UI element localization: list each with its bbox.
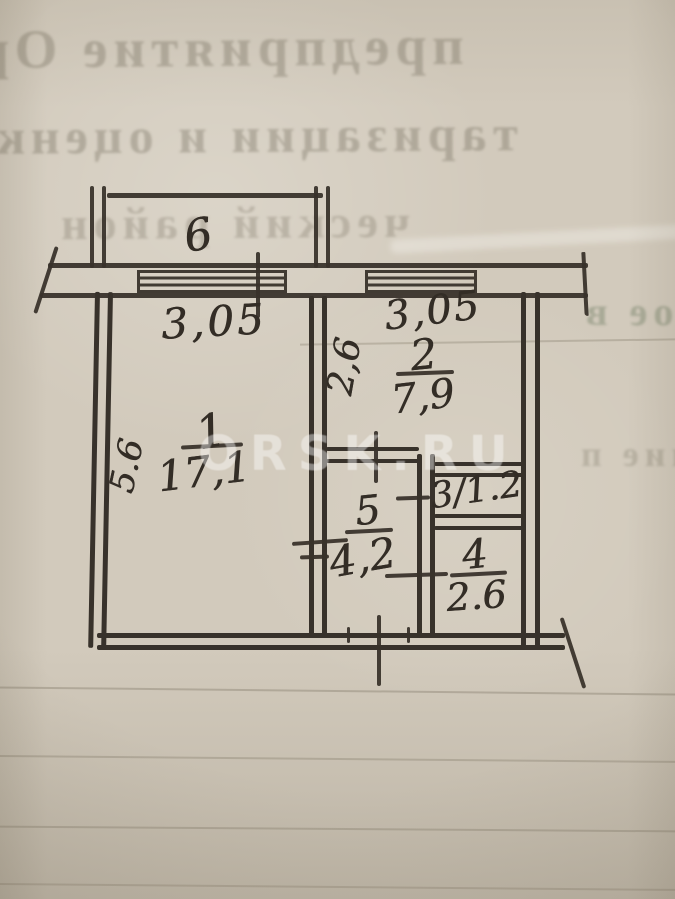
room4-area: 2.6 (445, 572, 508, 620)
top-wall-outer-line (48, 263, 588, 268)
bottom-wall (97, 633, 565, 650)
balcony-post-right-outer (314, 186, 318, 268)
ruled-line-2 (0, 686, 675, 695)
top-wall-end-slash-left (33, 246, 58, 314)
room2-area: 7,9 (388, 370, 457, 423)
ruled-line-4 (0, 826, 675, 833)
bleed-text-line-4: ое в (580, 288, 673, 335)
ruled-line-3 (0, 755, 675, 763)
bleed-text-line-2: таризации и оценк (0, 104, 518, 166)
room5-area: 4,2 (325, 528, 399, 588)
entrance-threshold-tick-left (347, 627, 350, 643)
dim-room2-depth: 2,6 (319, 335, 369, 399)
bottom-wall-end-slash-right (560, 617, 587, 689)
window-left (137, 270, 287, 293)
room5-number: 5 (353, 487, 383, 535)
entrance-threshold-tick-right (407, 627, 410, 643)
wall-room3-room4 (434, 514, 523, 530)
bleed-text-line-1: предприятие Ор (0, 14, 464, 81)
balcony-post-left-inner (102, 186, 106, 268)
dim-window-left: 3,05 (160, 294, 268, 348)
balcony-post-right-inner (326, 186, 330, 268)
watermark: ORSK.RU (198, 426, 519, 482)
ruled-line-5 (0, 883, 675, 891)
right-wall (521, 292, 540, 650)
photographed-floor-plan-page: предприятие Ор таризации и оценк ческий … (0, 0, 675, 899)
bleed-text-line-5: ние п (575, 433, 675, 475)
paper-crease (390, 224, 675, 254)
balcony-rail (107, 193, 323, 198)
room4-number: 4 (460, 531, 490, 579)
entrance-door-tick (377, 615, 381, 686)
balcony-post-left-outer (90, 186, 94, 268)
bleed-text-line-3: ческий район (55, 195, 410, 250)
